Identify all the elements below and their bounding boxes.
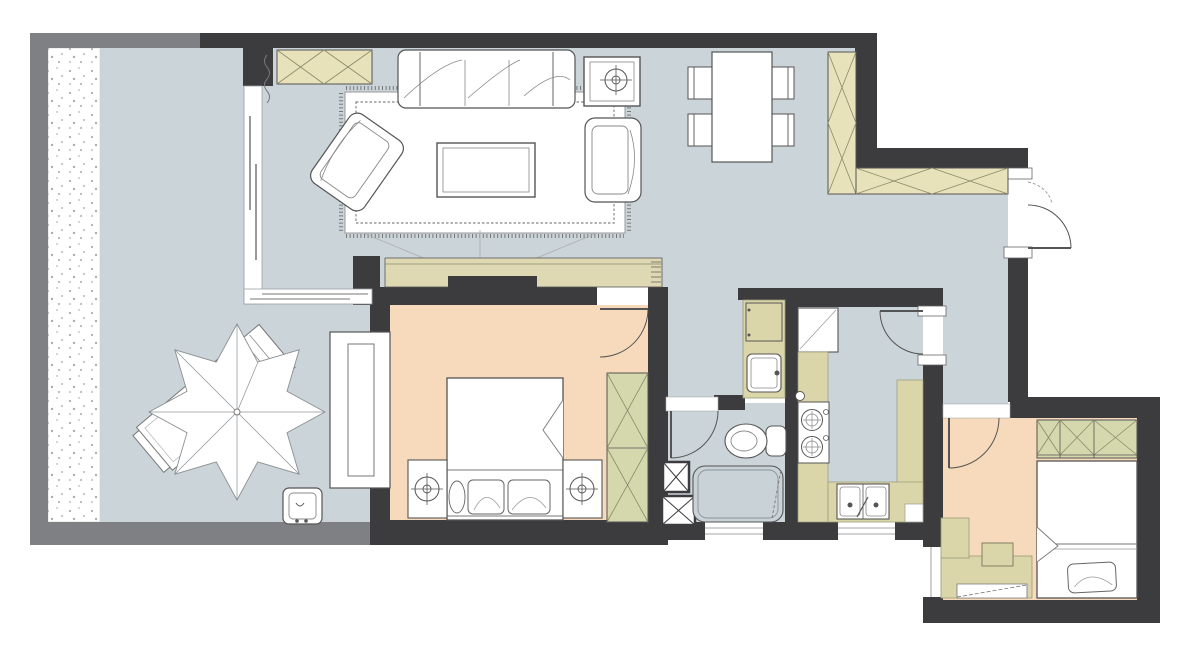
balcony-wall-left	[30, 33, 48, 545]
bed2-door-threshold	[943, 404, 1010, 418]
pillow-1	[468, 480, 504, 514]
bed2-wardrobe	[1037, 420, 1137, 458]
wall-kitchen-top	[785, 288, 943, 307]
stove	[798, 402, 829, 463]
basin-faucet	[775, 371, 780, 376]
entry-door-arc-small	[1028, 182, 1052, 203]
wall-bed2-right	[1137, 397, 1160, 623]
wall-entry-top	[877, 148, 1028, 170]
side-table-lamp	[584, 57, 640, 106]
balcony-slider-frame-horizontal	[244, 289, 372, 304]
wall-top	[200, 33, 877, 48]
counter-pad	[905, 504, 923, 522]
dining-chair-4	[770, 114, 794, 146]
dining-chair-1	[688, 67, 712, 99]
desk-paper	[957, 584, 1027, 598]
wall-bed1-bottom	[370, 520, 665, 545]
vanity-dot-2	[748, 334, 751, 337]
shelf-box	[941, 518, 969, 558]
floor-plan-root	[30, 33, 1160, 623]
hallway-floor	[665, 287, 743, 403]
entry-furniture	[828, 52, 1008, 194]
bed2-window	[923, 547, 943, 597]
wall-cabinet	[277, 50, 372, 84]
wall-bath-stub	[714, 395, 745, 410]
bathtub	[693, 466, 783, 522]
dining-chair-2	[688, 114, 712, 146]
floor-plan-canvas	[0, 0, 1200, 660]
pillow-2	[508, 480, 550, 514]
master-wardrobe	[607, 373, 648, 522]
parasol-pole	[234, 409, 240, 415]
vanity-dot-1	[748, 309, 751, 312]
floor-drain-dot2	[304, 519, 308, 523]
floor-plan-page	[0, 0, 1200, 660]
floor-drain-dot1	[295, 519, 299, 523]
deco-pillow	[449, 481, 465, 513]
armchair-right	[585, 118, 641, 202]
gas-point	[796, 392, 805, 401]
kitchen-door-opening	[923, 313, 943, 357]
wall-entry-vertical	[855, 33, 877, 170]
wall-bath-top	[738, 288, 798, 300]
balcony-wall-bottom	[30, 522, 372, 545]
bed2-pillow	[1067, 562, 1116, 593]
sink-drain-right	[874, 503, 879, 508]
bed2-pillow-body	[1067, 562, 1116, 593]
sink-drain-left	[848, 503, 853, 508]
wall-kitchen-left	[785, 288, 798, 527]
entry-door-opening	[1008, 178, 1028, 248]
coffee-table	[437, 143, 535, 197]
bathroom-door-threshold	[666, 397, 718, 411]
balcony-wall-top	[30, 33, 202, 48]
bathroom-window	[705, 522, 763, 540]
armchair-right-body	[585, 118, 641, 202]
wall-partition-stub	[243, 48, 273, 86]
desk-chair	[982, 543, 1013, 566]
bed1-door-opening	[597, 287, 648, 305]
balcony-slider-frame-vertical	[244, 86, 262, 304]
toilet-tank	[766, 426, 786, 456]
sofa	[398, 50, 575, 108]
wall-bed2-bottom	[923, 600, 1160, 623]
kitchen-door-frame-bottom	[918, 355, 946, 365]
balcony-gravel-strip	[48, 48, 100, 522]
entry-door-frame-bottom	[1004, 247, 1032, 258]
dining-table	[712, 52, 772, 162]
kitchen-window	[838, 522, 895, 540]
tv-screen	[448, 276, 537, 288]
entry-wardrobe-horizontal	[856, 168, 1008, 194]
master-window-pane	[348, 344, 374, 476]
dining-chair-3	[770, 67, 794, 99]
coffee-table-top	[437, 143, 535, 197]
entry-wardrobe-vertical	[828, 52, 856, 194]
entry-door-arc	[1028, 205, 1071, 248]
